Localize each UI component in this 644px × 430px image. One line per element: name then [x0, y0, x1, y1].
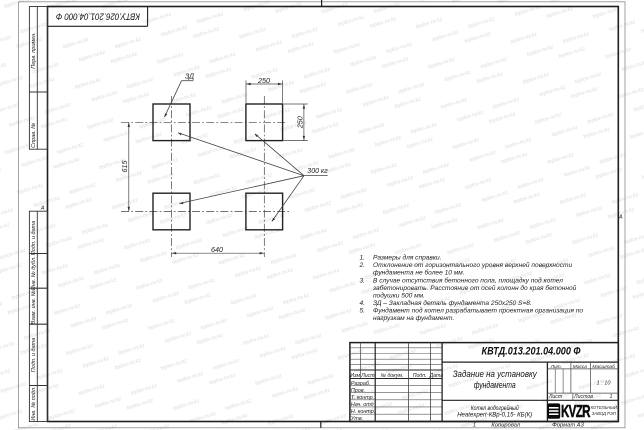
svg-text:Размеры для справки.: Размеры для справки.: [373, 254, 442, 262]
svg-text:3.: 3.: [360, 277, 366, 284]
svg-text:Heatexpert-КВр-0,15- КБ(К): Heatexpert-КВр-0,15- КБ(К): [457, 411, 532, 418]
svg-text:Нач. отд: Нач. отд: [351, 402, 374, 408]
svg-text:Справ. №: Справ. №: [31, 123, 37, 148]
svg-text:подушки 500 мм.: подушки 500 мм.: [373, 292, 425, 300]
svg-text:Масштаб: Масштаб: [592, 364, 615, 370]
svg-text:№ докум.: № докум.: [380, 373, 403, 379]
svg-text:Подп. и дата: Подп. и дата: [31, 338, 37, 372]
svg-text:Инв. № дубл.: Инв. № дубл.: [31, 256, 37, 290]
svg-text:ЗД: ЗД: [185, 72, 194, 81]
svg-text:Дата: Дата: [428, 373, 443, 379]
svg-text:Подп.: Подп.: [413, 373, 427, 379]
svg-text:Лист: Лист: [548, 394, 563, 400]
svg-text:фундамента не более 10 мм.: фундамента не более 10 мм.: [373, 269, 465, 277]
svg-text:Лист: Лист: [360, 373, 375, 379]
svg-text:Листов: Листов: [573, 394, 593, 400]
svg-text:КВТД.013.201.04.000 Ф: КВТД.013.201.04.000 Ф: [482, 346, 581, 358]
svg-text:1 : 10: 1 : 10: [597, 380, 612, 386]
svg-text:250: 250: [257, 76, 270, 85]
svg-text:300 кг: 300 кг: [307, 168, 328, 175]
svg-text:640: 640: [211, 245, 223, 254]
svg-text:2.: 2.: [359, 262, 366, 269]
svg-text:КВТУ.026.201.04.000 Ф: КВТУ.026.201.04.000 Ф: [56, 11, 140, 22]
svg-text:Пров.: Пров.: [351, 388, 365, 394]
svg-text:ЗАВОД РЭП: ЗАВОД РЭП: [592, 411, 617, 416]
svg-text:ЗД – Закладная деталь фундамен: ЗД – Закладная деталь фундамента 250х250…: [373, 299, 532, 307]
svg-text:нагрузкам на фундамент.: нагрузкам на фундамент.: [373, 314, 454, 322]
svg-text:Копировал: Копировал: [491, 422, 521, 428]
svg-text:KVZR: KVZR: [561, 401, 591, 421]
svg-text:Разраб.: Разраб.: [351, 381, 371, 387]
svg-text:Взам. инв. №: Взам. инв. №: [31, 290, 37, 324]
svg-text:А: А: [618, 215, 623, 221]
svg-text:КОТЕЛЬНЫЙ: КОТЕЛЬНЫЙ: [591, 405, 617, 410]
svg-text:Утв.: Утв.: [350, 416, 363, 422]
svg-text:Перв. примен.: Перв. примен.: [31, 32, 37, 69]
svg-text:615: 615: [120, 160, 129, 173]
svg-text:5.: 5.: [360, 308, 366, 315]
svg-text:4.: 4.: [360, 300, 366, 307]
svg-text:1: 1: [473, 422, 476, 428]
svg-text:Лит.: Лит.: [550, 364, 562, 370]
svg-text:фундамента: фундамента: [474, 380, 516, 391]
svg-text:Подп. и дата: Подп. и дата: [31, 221, 37, 255]
svg-text:1.: 1.: [360, 255, 366, 262]
svg-text:Задание на установку: Задание на установку: [453, 369, 538, 380]
svg-text:Фундамент под котел разрабатыв: Фундамент под котел разрабатывает проект…: [373, 307, 583, 315]
svg-text:Инв. № подл.: Инв. № подл.: [31, 387, 37, 421]
svg-text:Изм: Изм: [350, 373, 360, 379]
svg-text:Н. контр.: Н. контр.: [351, 409, 375, 415]
svg-text:1: 1: [610, 394, 613, 400]
svg-text:В случае отсутствия бетонного: В случае отсутствия бетонного пола, площ…: [373, 276, 563, 284]
svg-text:Т. контр.: Т. контр.: [351, 395, 374, 401]
svg-text:А: А: [40, 206, 45, 212]
svg-text:забетонировать. Расстояние от: забетонировать. Расстояние от осей колон…: [372, 284, 577, 292]
svg-text:250: 250: [295, 116, 304, 129]
svg-text:Масса: Масса: [573, 364, 588, 370]
svg-text:Отклонение от горизонтального: Отклонение от горизонтального уровня вер…: [373, 261, 572, 269]
svg-text:Формат А3: Формат А3: [552, 422, 584, 428]
